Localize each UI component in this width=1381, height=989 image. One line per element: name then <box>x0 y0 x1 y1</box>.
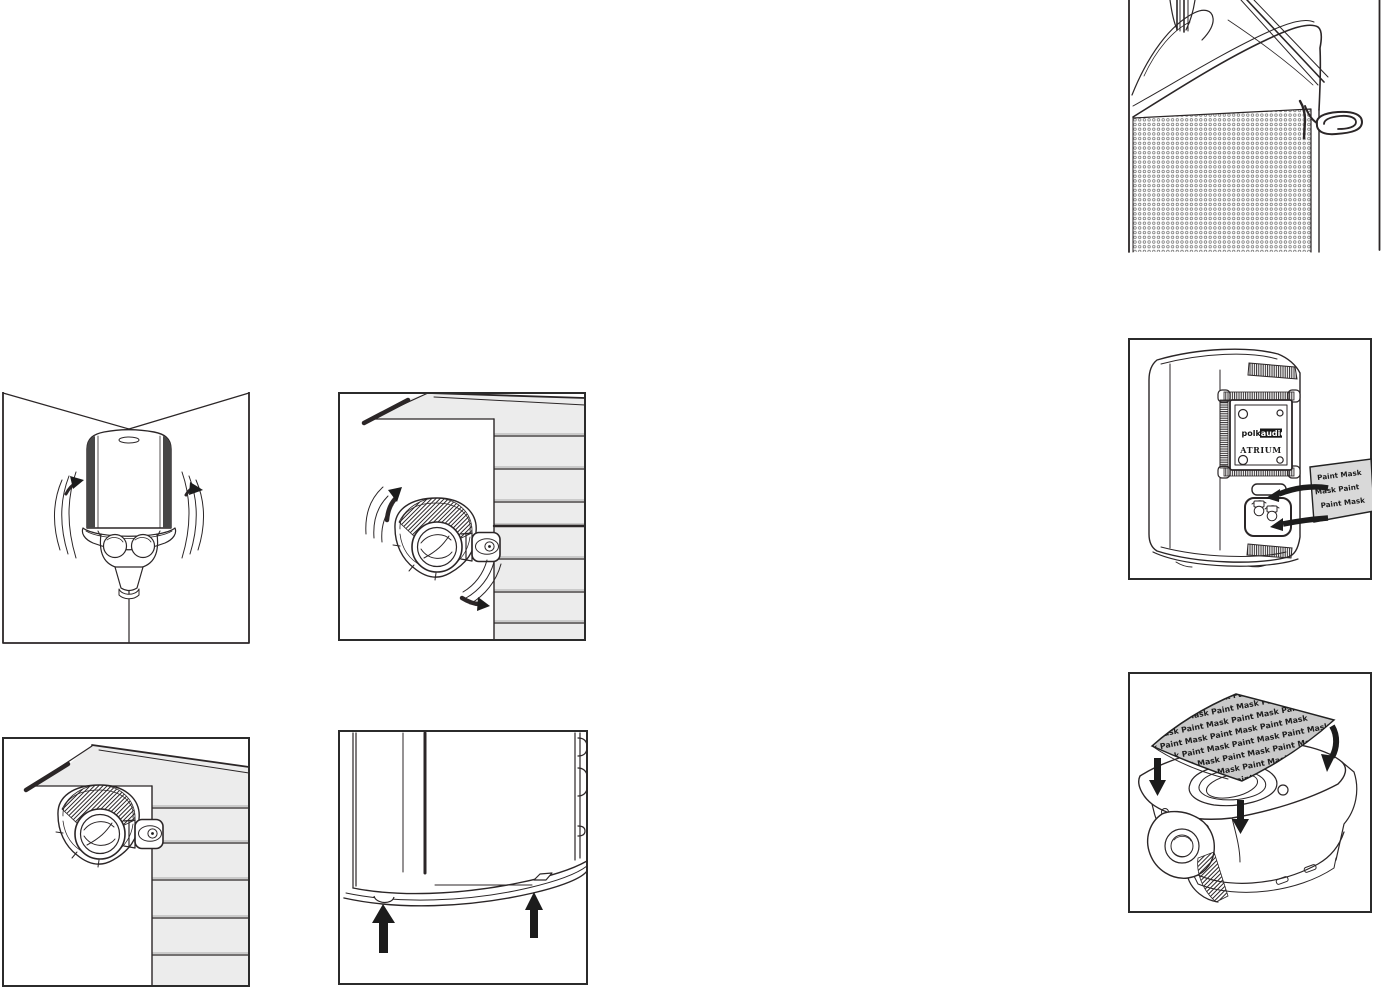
figure-knob-under-eave <box>2 737 250 987</box>
paint-mask-sheet-drawing: Paint Mask Paint Mask Paint Mask Paint M… <box>1128 672 1372 913</box>
speaker-grille <box>1133 101 1319 252</box>
boot-hatch <box>1198 852 1228 902</box>
terminal-recess <box>1245 498 1291 536</box>
svg-text:polkaudio: polkaudio <box>1242 429 1287 438</box>
speaker-bottom <box>344 733 588 906</box>
speaker-top <box>1132 0 1328 117</box>
swing-motion-right <box>182 472 204 558</box>
swing-motion-left <box>54 472 84 558</box>
figure-paint-mask-sheet: Paint Mask Paint Mask Paint Mask Paint M… <box>1128 672 1372 913</box>
hanging-speaker <box>82 430 175 599</box>
binding-post <box>1254 506 1264 516</box>
grille-removal-drawing <box>1128 0 1381 253</box>
speaker-left-shade <box>87 436 95 528</box>
logo-audio: audio <box>1261 429 1287 438</box>
paint-mask-sticker: Paint Mask Mask Paint Paint Mask <box>1310 459 1372 522</box>
up-arrow-icon <box>525 892 543 938</box>
corner-hang-drawing <box>2 392 250 644</box>
model-label: ATRIUM <box>1239 445 1282 455</box>
rotate-down-arrow-icon <box>477 597 490 611</box>
figure-bottom-tabs <box>338 730 588 985</box>
foot-tab-right <box>534 873 552 880</box>
up-arrow-icon <box>372 904 395 953</box>
back-panel-drawing: polkaudio ATRIUM Paint Mask Mask Paint P… <box>1128 338 1372 580</box>
bottom-tabs-drawing <box>338 730 588 985</box>
manual-page: polkaudio ATRIUM Paint Mask Mask Paint P… <box>0 0 1381 989</box>
logo-polk: polk <box>1242 429 1262 438</box>
figure-knob-swivel <box>338 392 586 641</box>
figure-corner-hang <box>2 392 250 644</box>
speaker-right-shade <box>163 436 171 528</box>
bracket-wedge <box>115 567 143 591</box>
binding-post <box>1267 511 1277 521</box>
mounting-plate: polkaudio ATRIUM <box>1218 390 1300 478</box>
figure-border <box>339 731 587 984</box>
siding-area <box>30 745 249 986</box>
paperclip-icon <box>1305 106 1362 134</box>
mounting-knob <box>56 785 163 867</box>
spring-coil-top <box>1224 392 1294 400</box>
figure-grille-removal <box>1128 0 1381 253</box>
foot-tab-left <box>374 896 394 903</box>
spring-coil-left <box>1220 400 1228 468</box>
bracket-boot <box>1148 812 1228 902</box>
knob-under-eave-drawing <box>2 737 250 987</box>
ceiling-corner-lines <box>3 393 249 429</box>
knob-swivel-drawing <box>338 392 586 641</box>
figure-back-panel: polkaudio ATRIUM Paint Mask Mask Paint P… <box>1128 338 1372 580</box>
brand-logo: polkaudio <box>1242 429 1287 439</box>
